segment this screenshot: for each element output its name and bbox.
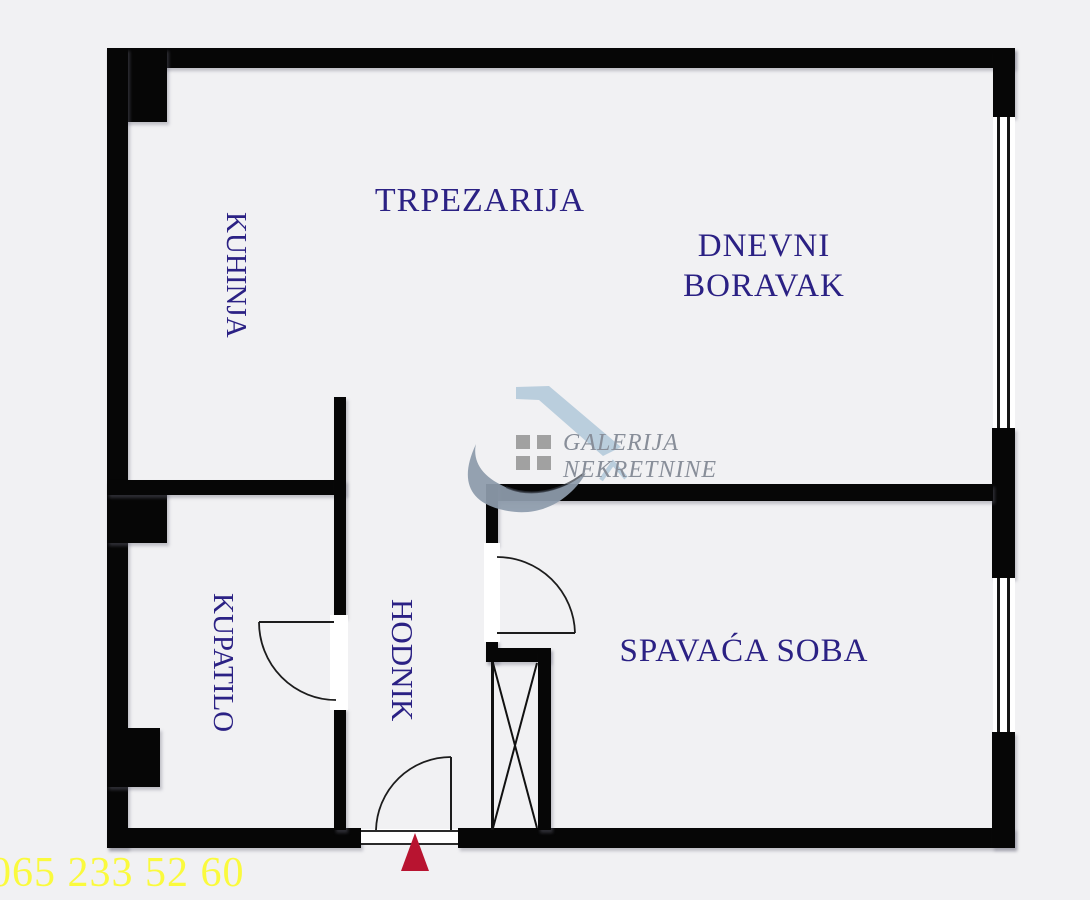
wall-hallway-left-upper xyxy=(334,397,346,617)
watermark-square-icon xyxy=(516,435,530,449)
room-label-kitchen: KUHINJA xyxy=(219,212,252,338)
door-arc-bedroom xyxy=(497,557,575,633)
wall-bathroom-top xyxy=(107,480,346,495)
window-bedroom-pane-line xyxy=(997,578,1000,732)
wall-right-middle-pillar xyxy=(992,428,1015,578)
room-label-bathroom: KUPATILO xyxy=(206,593,239,732)
window-bedroom-pane-line xyxy=(1007,578,1010,732)
wall-top xyxy=(107,48,1015,68)
room-label-living-line2: BORAVAK xyxy=(664,266,864,306)
wall-top-right-pillar xyxy=(993,48,1015,117)
watermark-square-icon xyxy=(516,456,530,470)
wall-left-lower-pillar xyxy=(107,728,160,787)
watermark-brand-line1: GALERIJA xyxy=(563,430,679,457)
closet-cross-icon xyxy=(493,663,537,828)
phone-number: 065 233 52 60 xyxy=(0,849,245,897)
watermark-square-icon xyxy=(537,435,551,449)
room-label-living-line1: DNEVNI xyxy=(664,226,864,266)
window-living-room-pane-line xyxy=(997,117,1000,428)
wall-closet-right xyxy=(538,648,551,830)
watermark-brand-line2: NEKRETNINE xyxy=(563,457,717,484)
window-living-room-pane-line xyxy=(1007,117,1010,428)
door-opening-bathroom xyxy=(330,615,348,710)
watermark-square-icon xyxy=(537,456,551,470)
door-opening-bedroom xyxy=(484,543,500,642)
wall-hallway-left-lower xyxy=(334,708,346,830)
wall-bottom-right-pillar xyxy=(992,732,1015,848)
room-label-bedroom: SPAVAĆA SOBA xyxy=(594,633,894,670)
wall-bottom-right xyxy=(458,828,1015,848)
entrance-threshold-line xyxy=(361,830,458,832)
entrance-threshold-line xyxy=(361,843,458,845)
floor-plan: KUHINJA TRPEZARIJA DNEVNI BORAVAK KUPATI… xyxy=(0,0,1090,900)
wall-bedroom-left-upper xyxy=(486,484,498,545)
room-label-living: DNEVNI BORAVAK xyxy=(664,226,864,306)
room-label-hallway: HODNIK xyxy=(384,599,420,721)
door-arc-bathroom xyxy=(259,622,336,700)
wall-bottom-left xyxy=(107,828,361,848)
wall-bedroom-top xyxy=(486,484,993,501)
room-label-dining: TRPEZARIJA xyxy=(360,182,600,220)
door-arc-entrance xyxy=(376,757,451,830)
